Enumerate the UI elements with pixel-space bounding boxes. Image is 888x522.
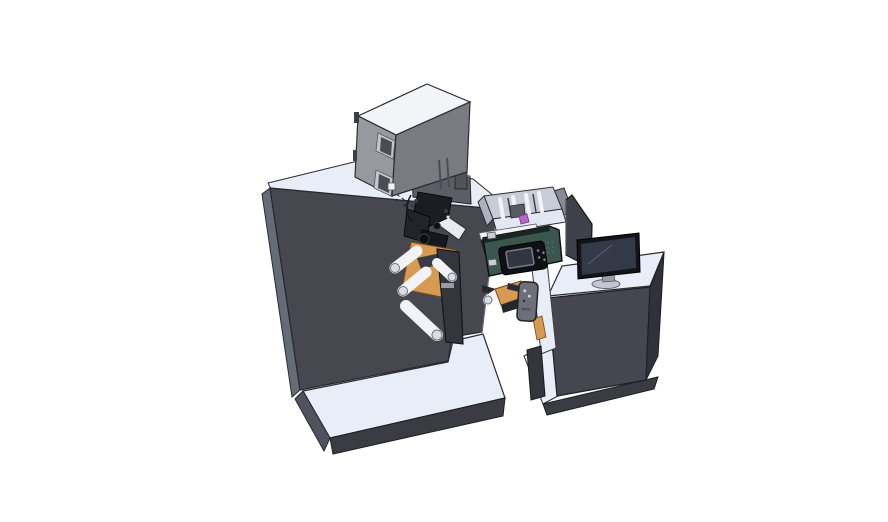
printer-hinge-tab xyxy=(487,232,496,239)
seam-dot xyxy=(396,199,399,202)
web-roller-end-cap xyxy=(448,273,456,281)
web-roller-end-cap xyxy=(432,330,442,340)
cad-render-canvas xyxy=(0,0,888,522)
web-roller-end-cap xyxy=(391,264,400,273)
printer-hinge-tab xyxy=(488,259,497,266)
sensor-remote-body xyxy=(517,281,539,321)
outfeed-roller-end-cap xyxy=(484,296,492,304)
desk-front-face xyxy=(548,287,650,396)
mechanism-pulley xyxy=(434,223,441,230)
web-roller-end-cap xyxy=(399,287,408,296)
mechanism-white-dot xyxy=(447,216,450,219)
printer-display-screen xyxy=(506,248,534,269)
column-label-plate xyxy=(441,283,454,288)
seam-dot xyxy=(404,204,407,207)
mechanism-knob xyxy=(414,199,418,203)
mechanism-pulley xyxy=(419,234,429,244)
mechanism-knob xyxy=(444,209,448,213)
machine-line-render xyxy=(0,0,888,522)
tray-magenta-part xyxy=(519,214,529,224)
coder-box-hinge xyxy=(353,150,357,161)
coder-box-corner-plate xyxy=(388,183,395,190)
coder-box-hinge xyxy=(354,112,359,123)
sensor-remote-unit xyxy=(517,281,539,321)
